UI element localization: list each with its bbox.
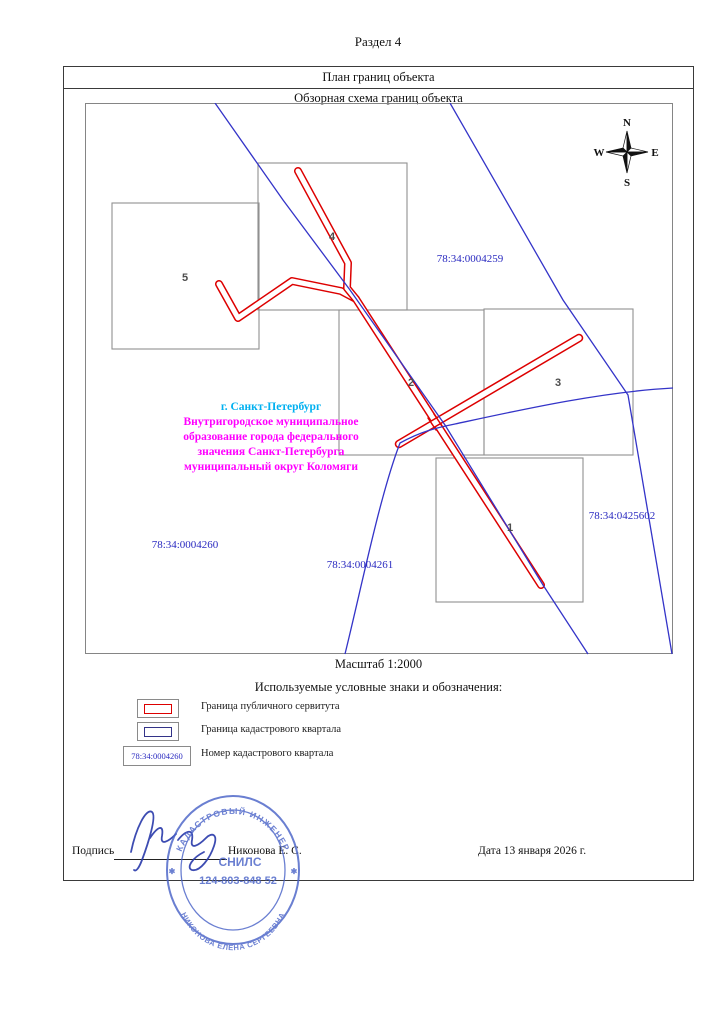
legend-sample-quarter (137, 722, 179, 741)
parcel-number-label: 3 (555, 377, 561, 389)
stamp-star-right: ✱ (291, 867, 298, 876)
engineer-stamp: КАДАСТРОВЫЙ ИНЖЕНЕР НИКОНОВА ЕЛЕНА СЕРГЕ… (118, 786, 318, 962)
parcel-number-label: 1 (507, 522, 513, 534)
compass-label-n: N (623, 117, 631, 129)
compass-label-w: W (594, 147, 605, 159)
municipality-line: образование города федерального (98, 430, 444, 445)
legend-heading: Используемые условные знаки и обозначени… (64, 680, 693, 695)
compass-label-s: S (624, 177, 630, 189)
stamp-star-left: ✱ (169, 867, 176, 876)
scale-label: Масштаб 1:2000 (64, 657, 693, 672)
overview-map: N E S W 78:34:0004259 78:34:0425602 78:3… (85, 103, 674, 655)
quarter-code-label: 78:34:0004261 (327, 559, 394, 571)
section-title: Раздел 4 (63, 34, 693, 50)
parcel-number-label: 5 (182, 272, 188, 284)
parcel-number-label: 4 (329, 231, 336, 243)
stamp-graphic: КАДАСТРОВЫЙ ИНЖЕНЕР НИКОНОВА ЕЛЕНА СЕРГЕ… (167, 796, 299, 952)
quarter-code-label: 78:34:0004260 (152, 539, 219, 551)
city-name: г. Санкт-Петербург (98, 400, 444, 415)
signature-label: Подпись (72, 845, 114, 857)
plan-title: План границ объекта (64, 67, 693, 89)
legend-item-label: Номер кадастрового квартала (201, 748, 333, 759)
location-text-block: г. Санкт-Петербург Внутригородское муниц… (98, 400, 444, 475)
quarter-code-label: 78:34:0425602 (589, 510, 656, 522)
boundary-plan-box: План границ объекта Обзорная схема грани… (63, 66, 694, 881)
municipality-line: значения Санкт-Петербурга (98, 445, 444, 460)
map-border (86, 104, 673, 654)
municipality-line: муниципальный округ Коломяги (98, 460, 444, 475)
servitude-line-sample (144, 704, 172, 714)
date-label: Дата 13 января 2026 г. (478, 845, 586, 857)
legend-sample-servitude (137, 699, 179, 718)
municipality-line: Внутригородское муниципальное (98, 415, 444, 430)
legend-item-label: Граница кадастрового квартала (201, 724, 341, 735)
legend-item-label: Граница публичного сервитута (201, 701, 340, 712)
quarter-boundary-lines (215, 103, 673, 654)
parcel-number-label: 2 (408, 377, 414, 389)
legend-sample-code-box: 78:34:0004260 (123, 746, 191, 766)
compass-rose: N E S W (594, 117, 659, 189)
compass-label-e: E (651, 147, 658, 159)
stamp-snils-label: СНИЛС (218, 855, 261, 869)
svg-text:НИКОНОВА ЕЛЕНА СЕРГЕЕВНА: НИКОНОВА ЕЛЕНА СЕРГЕЕВНА (179, 911, 287, 952)
quarter-line-sample (144, 727, 172, 737)
cadastral-document-page: Раздел 4 План границ объекта Обзорная сх… (0, 0, 724, 1024)
quarter-code-label: 78:34:0004259 (437, 253, 504, 265)
stamp-bottom-text: НИКОНОВА ЕЛЕНА СЕРГЕЕВНА (179, 911, 287, 952)
stamp-snils-number: 124-803-848 52 (199, 875, 277, 887)
